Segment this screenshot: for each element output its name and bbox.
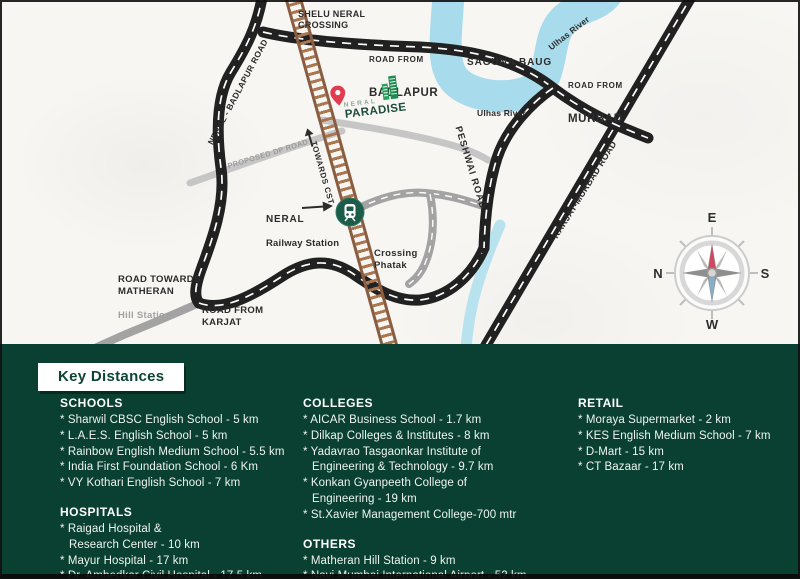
section-heading: RETAIL (578, 396, 793, 410)
distance-item: * Navi Mumbai International Airport - 52… (303, 569, 575, 579)
panel-section-colleges: COLLEGES* AICAR Business School - 1.7 km… (303, 396, 575, 524)
station-pointer-arrow-icon (301, 200, 334, 214)
label-ulhas-river-lower: Ulhas River (477, 108, 526, 119)
label-station-line1: NERAL (266, 214, 339, 227)
distance-item: * Mayur Hospital - 17 km (60, 554, 300, 570)
distances-column-colleges-others: COLLEGES* AICAR Business School - 1.7 km… (303, 396, 575, 579)
distances-column-retail: RETAIL* Moraya Supermarket - 2 km* KES E… (578, 396, 793, 489)
label-crossing-phatak: Crossing Phatak (374, 248, 418, 272)
label-matheran-main: ROAD TOWARDS MATHERAN (118, 274, 201, 298)
section-heading: HOSPITALS (60, 505, 300, 519)
panel-section-retail: RETAIL* Moraya Supermarket - 2 km* KES E… (578, 396, 793, 476)
label-station-line2: Railway Station (266, 238, 339, 250)
distances-column-schools-hospitals: SCHOOLS* Sharwil CBSC English School - 5… (60, 396, 300, 579)
compass-letter-bottom: W (706, 317, 719, 330)
panel-title: Key Distances (38, 363, 184, 391)
distance-item: * Yadavrao Tasgaonkar Institute of Engin… (303, 445, 575, 477)
distance-item: * L.A.E.S. English School - 5 km (60, 429, 300, 445)
road-from-karjat (199, 248, 484, 306)
distance-item: * Sharwil CBSC English School - 5 km (60, 413, 300, 429)
label-road-from-karjat: ROAD FROM KARJAT (202, 305, 263, 329)
label-road-from-murbad: ROAD FROM MURBAD (568, 61, 623, 146)
distance-item: * Dr. Ambedkar Civil Hospital - 17.5 km (60, 569, 300, 579)
distance-item: * VY Kothari English School - 7 km (60, 476, 300, 492)
railway-station-icon (335, 197, 365, 227)
label-shelu-neral-crossing: SHELU NERAL CROSSING (298, 9, 365, 32)
distance-item: * Rainbow English Medium School - 5.5 km (60, 445, 300, 461)
distance-item: * Matheran Hill Station - 9 km (303, 554, 575, 570)
panel-section-hospitals: HOSPITALS* Raigad Hospital & Research Ce… (60, 505, 300, 579)
label-road-from-badlapur-prefix: ROAD FROM (369, 55, 438, 65)
section-heading: SCHOOLS (60, 396, 300, 410)
distance-item: * India First Foundation School - 6 Km (60, 460, 300, 476)
distance-item: * St.Xavier Management College-700 mtr (303, 508, 575, 524)
distance-item: * AICAR Business School - 1.7 km (303, 413, 575, 429)
compass-letter-top: E (708, 212, 717, 225)
panel-section-others: OTHERS* Matheran Hill Station - 9 km* Na… (303, 537, 575, 579)
distance-item: * Moraya Supermarket - 2 km (578, 413, 793, 429)
building-icon (379, 71, 400, 101)
neral-badlapur-dashes (196, 0, 263, 303)
label-hill-station: Hill Station (118, 310, 201, 322)
distance-item: * Dilkap Colleges & Institutes - 8 km (303, 429, 575, 445)
section-heading: OTHERS (303, 537, 575, 551)
compass-rose: E N S W (653, 212, 771, 330)
distance-item: * Raigad Hospital & Research Center - 10… (60, 522, 300, 554)
station-road (357, 193, 486, 209)
compass-letter-left: N (653, 266, 662, 281)
neral-paradise-logo: NERAL PARADISE (325, 77, 410, 132)
distance-item: * KES English Medium School - 7 km (578, 429, 793, 445)
map-area: NERAL PARADISE SHELU NERAL CROSSING ROAD… (0, 0, 800, 345)
compass-letter-right: S (761, 266, 770, 281)
label-road-from-murbad-prefix: ROAD FROM (568, 81, 623, 91)
location-map-graphic: NERAL PARADISE SHELU NERAL CROSSING ROAD… (0, 0, 800, 579)
section-heading: COLLEGES (303, 396, 575, 410)
label-murbad: MURBAD (568, 112, 623, 126)
key-distances-panel: Key Distances SCHOOLS* Sharwil CBSC Engl… (0, 344, 800, 579)
panel-section-schools: SCHOOLS* Sharwil CBSC English School - 5… (60, 396, 300, 492)
label-saguna-baug: SAGUNA BAUG (467, 57, 552, 70)
distance-item: * D-Mart - 15 km (578, 445, 793, 461)
label-road-towards-matheran: ROAD TOWARDS MATHERAN Hill Station (118, 262, 201, 333)
distance-item: * Konkan Gyanpeeth College of Engineerin… (303, 476, 575, 508)
distance-item: * CT Bazaar - 17 km (578, 460, 793, 476)
